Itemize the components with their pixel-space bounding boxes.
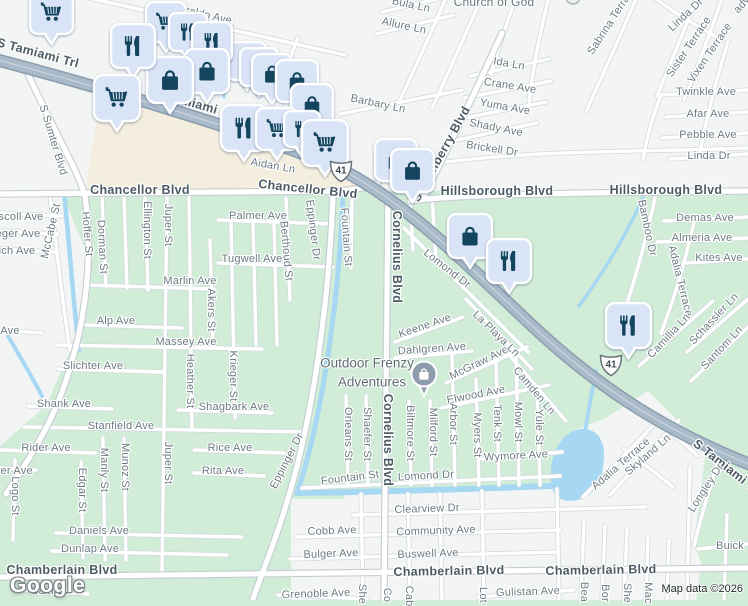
place-pin-cart[interactable] bbox=[25, 0, 78, 55]
place-pin-cart[interactable] bbox=[89, 72, 145, 142]
route-41-shield: 41 bbox=[598, 350, 624, 383]
svg-text:41: 41 bbox=[335, 166, 347, 177]
map-canvas[interactable]: S Tamiami TrlS Tamiami TrlChancellor Blv… bbox=[0, 0, 748, 600]
poi-marker-outdoor-frenzy[interactable] bbox=[407, 360, 441, 406]
map-attribution: Map data ©2026 bbox=[662, 583, 744, 595]
google-logo[interactable]: Google bbox=[10, 574, 85, 598]
place-pin-restaurant[interactable] bbox=[482, 236, 536, 304]
place-pins-layer: 4141 bbox=[0, 0, 748, 600]
place-pin-bag[interactable] bbox=[386, 146, 439, 213]
svg-text:41: 41 bbox=[605, 360, 617, 371]
route-41-shield: 41 bbox=[328, 156, 354, 189]
